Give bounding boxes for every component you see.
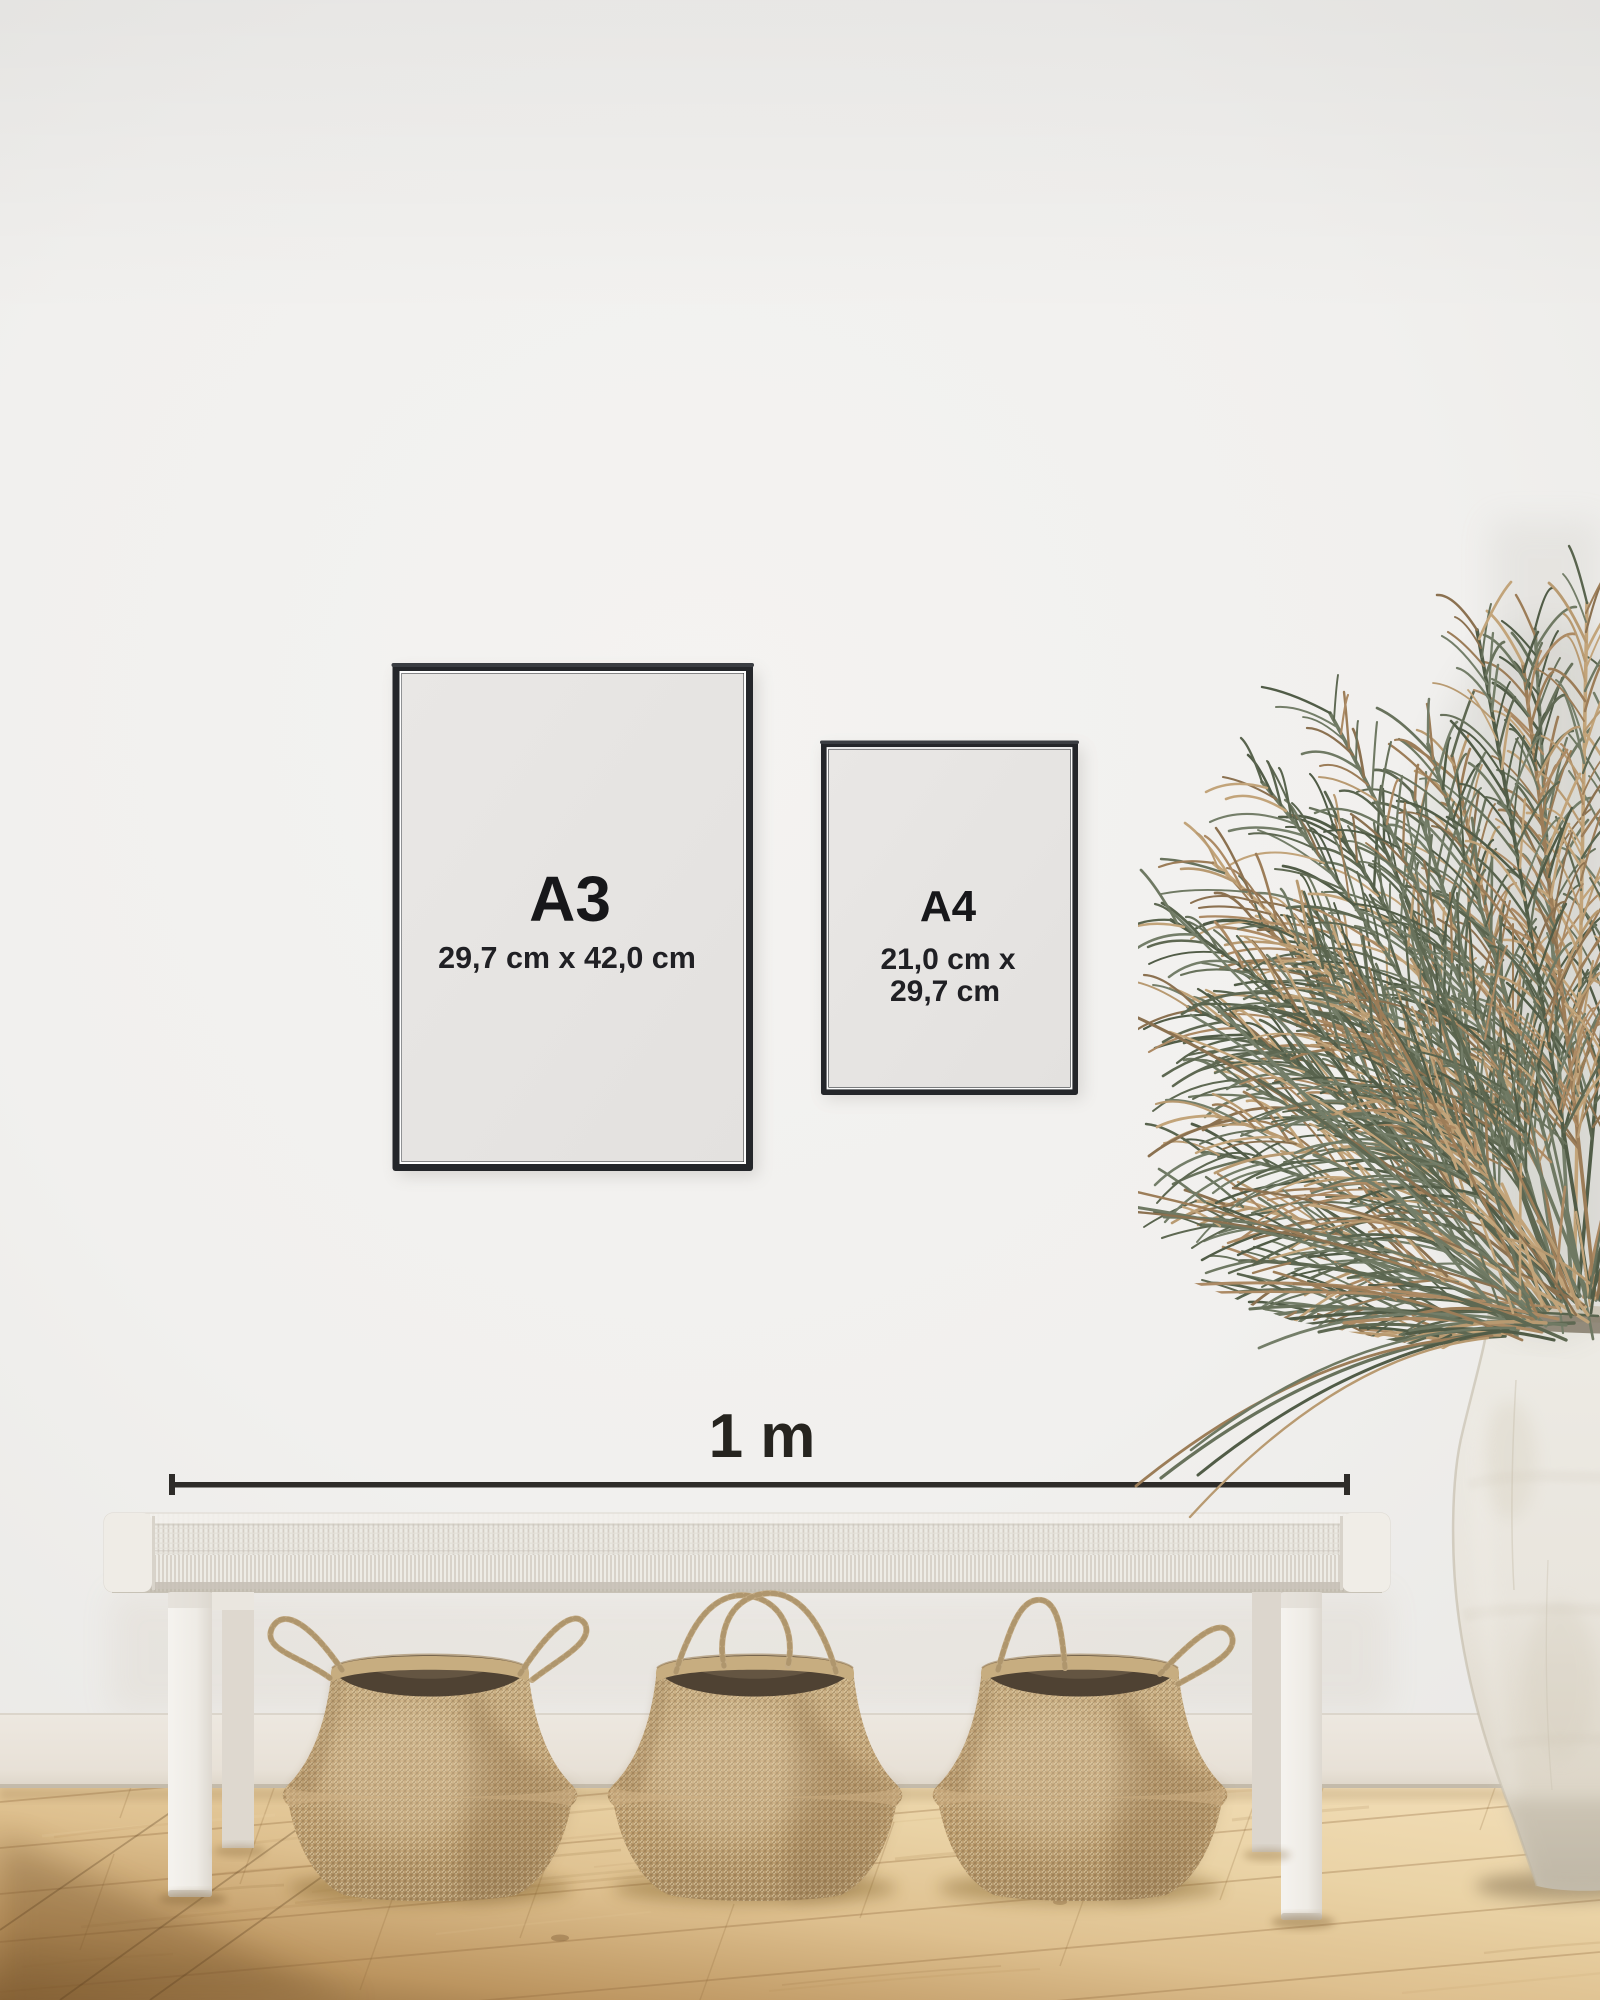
svg-text:29,7 cm: 29,7 cm — [890, 975, 1000, 1008]
svg-text:A3: A3 — [529, 863, 611, 935]
svg-text:21,0 cm x: 21,0 cm x — [880, 943, 1015, 976]
svg-text:A4: A4 — [920, 882, 977, 931]
svg-text:1 m: 1 m — [709, 1402, 816, 1471]
svg-text:29,7 cm x 42,0 cm: 29,7 cm x 42,0 cm — [438, 941, 696, 975]
